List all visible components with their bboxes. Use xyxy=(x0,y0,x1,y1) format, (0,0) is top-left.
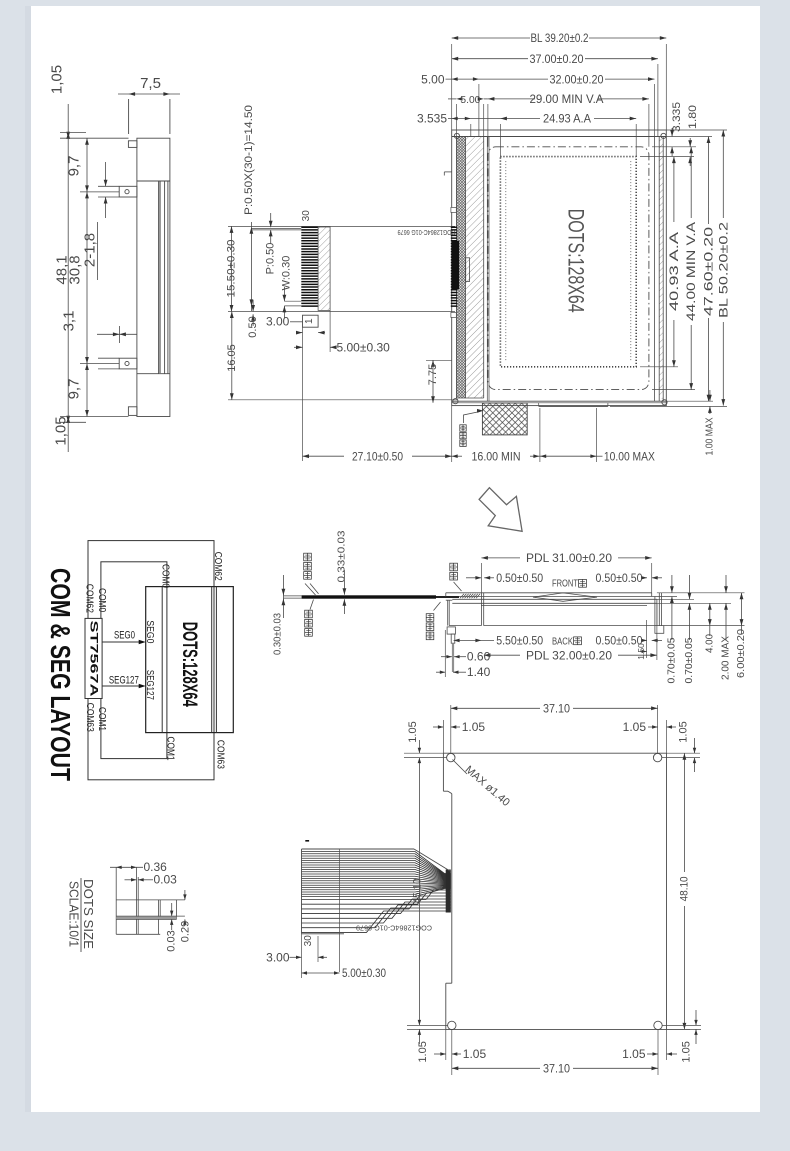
svg-text:5.00: 5.00 xyxy=(460,94,480,106)
svg-text:0.33±0.03: 0.33±0.03 xyxy=(337,530,348,583)
svg-text:0.70±0.05: 0.70±0.05 xyxy=(684,637,695,683)
svg-text:1.80: 1.80 xyxy=(687,105,699,129)
svg-text:ST7567A: ST7567A xyxy=(88,621,100,697)
svg-text:1.05: 1.05 xyxy=(417,1041,429,1062)
svg-text:3.535: 3.535 xyxy=(417,112,447,126)
svg-text:29.00 MIN V.A: 29.00 MIN V.A xyxy=(530,92,604,106)
svg-text:COM63: COM63 xyxy=(84,703,96,732)
svg-text:16.00 MIN: 16.00 MIN xyxy=(472,449,521,463)
svg-text:9,7: 9,7 xyxy=(66,379,83,400)
svg-text:0.30±0.03: 0.30±0.03 xyxy=(273,613,284,655)
svg-text:COM62: COM62 xyxy=(212,552,224,581)
svg-text:PDL 32.00±0.20: PDL 32.00±0.20 xyxy=(526,648,612,662)
svg-text:1.40: 1.40 xyxy=(467,665,491,679)
svg-text:30: 30 xyxy=(303,935,314,947)
svg-text:4.00: 4.00 xyxy=(704,634,715,653)
svg-text:SCLAE:10/1: SCLAE:10/1 xyxy=(67,881,82,947)
svg-text:0.50±0.50: 0.50±0.50 xyxy=(496,571,543,585)
svg-text:1.05: 1.05 xyxy=(681,1041,693,1062)
svg-text:COG12864C-01G 6679: COG12864C-01G 6679 xyxy=(398,228,456,237)
svg-text:0.60: 0.60 xyxy=(467,650,491,664)
svg-text:SEG127: SEG127 xyxy=(109,675,139,687)
svg-text:COM & SEG LAYOUT: COM & SEG LAYOUT xyxy=(45,568,75,781)
svg-text:37.10: 37.10 xyxy=(543,702,570,716)
svg-text:1,05: 1,05 xyxy=(49,65,66,94)
svg-text:DOTS:128X64: DOTS:128X64 xyxy=(179,622,203,708)
svg-text:P:0.50X(30-1)=14.50: P:0.50X(30-1)=14.50 xyxy=(243,105,255,215)
svg-text:45.10: 45.10 xyxy=(412,879,424,904)
svg-text:16.05: 16.05 xyxy=(226,344,238,372)
svg-text:44.00 MIN V.A: 44.00 MIN V.A xyxy=(684,222,698,321)
svg-text:48.10: 48.10 xyxy=(678,876,690,901)
svg-text:SEG0: SEG0 xyxy=(144,620,156,643)
svg-text:3.00: 3.00 xyxy=(266,314,290,328)
svg-text:30: 30 xyxy=(301,210,312,222)
svg-text:3.00: 3.00 xyxy=(266,950,290,964)
svg-text:37.10: 37.10 xyxy=(543,1062,570,1076)
svg-text:1.05: 1.05 xyxy=(622,1047,646,1061)
svg-text:SEG0: SEG0 xyxy=(114,629,135,641)
svg-text:1.05: 1.05 xyxy=(623,720,647,734)
svg-text:PDL 31.00±0.20: PDL 31.00±0.20 xyxy=(526,551,612,565)
svg-text:5.00±0.30: 5.00±0.30 xyxy=(337,340,391,354)
svg-text:2.00 MAX: 2.00 MAX xyxy=(721,636,732,680)
svg-text:1,05: 1,05 xyxy=(53,416,70,445)
svg-text:27.10±0.50: 27.10±0.50 xyxy=(352,449,403,463)
svg-text:P:0.50: P:0.50 xyxy=(265,243,277,275)
svg-text:10.00 MAX: 10.00 MAX xyxy=(604,449,655,463)
svg-text:W:0.30: W:0.30 xyxy=(280,256,292,291)
svg-text:COG12864C-01G 6679: COG12864C-01G 6679 xyxy=(356,924,432,933)
svg-text:40.93 A.A: 40.93 A.A xyxy=(667,232,681,311)
svg-text:COM1: COM1 xyxy=(165,737,177,761)
svg-text:1: 1 xyxy=(304,318,315,324)
svg-text:1.05: 1.05 xyxy=(463,1047,487,1061)
svg-text:2-1,8: 2-1,8 xyxy=(82,233,99,267)
svg-text:BACK: BACK xyxy=(552,636,573,647)
svg-text:COM62: COM62 xyxy=(84,584,96,613)
svg-text:9,7: 9,7 xyxy=(66,156,83,177)
svg-text:1.05: 1.05 xyxy=(677,721,689,742)
svg-text:1.05: 1.05 xyxy=(462,720,486,734)
svg-text:24.93 A.A: 24.93 A.A xyxy=(543,112,591,126)
svg-text:32.00±0.20: 32.00±0.20 xyxy=(550,72,604,86)
svg-text:0.70±0.05: 0.70±0.05 xyxy=(666,637,677,683)
svg-text:DOTS:128X64: DOTS:128X64 xyxy=(564,209,588,313)
svg-text:0.29: 0.29 xyxy=(180,921,192,942)
svg-text:6.00±0.20: 6.00±0.20 xyxy=(736,629,747,678)
svg-text:BL 50.20±0.2: BL 50.20±0.2 xyxy=(716,222,730,318)
svg-text:DOTS SIZE: DOTS SIZE xyxy=(81,879,96,949)
svg-text:SEG127: SEG127 xyxy=(144,670,156,700)
svg-text:47.60±0.20: 47.60±0.20 xyxy=(702,227,716,316)
svg-text:BL 39.20±0.2: BL 39.20±0.2 xyxy=(531,31,589,45)
svg-text:COM0: COM0 xyxy=(96,588,108,612)
svg-text:5.00±0.30: 5.00±0.30 xyxy=(342,966,386,980)
svg-text:COM1: COM1 xyxy=(96,707,108,731)
svg-text:1.50: 1.50 xyxy=(636,643,646,660)
svg-text:3.335: 3.335 xyxy=(671,102,683,132)
svg-text:0.03: 0.03 xyxy=(166,930,178,951)
svg-text:0.50: 0.50 xyxy=(247,316,259,337)
svg-text:COM63: COM63 xyxy=(215,740,227,769)
svg-text:FRONT: FRONT xyxy=(552,579,578,590)
svg-text:COM0: COM0 xyxy=(160,564,172,588)
svg-text:1.00 MAX: 1.00 MAX xyxy=(704,417,715,455)
svg-text:1.05: 1.05 xyxy=(407,721,419,742)
svg-text:0.03: 0.03 xyxy=(154,873,178,887)
svg-text:37.00±0.20: 37.00±0.20 xyxy=(530,52,584,66)
svg-text:0.50±0.50: 0.50±0.50 xyxy=(596,571,643,585)
svg-text:5.00: 5.00 xyxy=(421,72,445,86)
svg-text:15.50±0.30: 15.50±0.30 xyxy=(226,240,238,298)
svg-text:7,5: 7,5 xyxy=(140,75,161,92)
svg-text:3,1: 3,1 xyxy=(61,311,78,332)
svg-text:7.75: 7.75 xyxy=(427,364,439,385)
svg-text:5.50±0.50: 5.50±0.50 xyxy=(496,634,543,648)
